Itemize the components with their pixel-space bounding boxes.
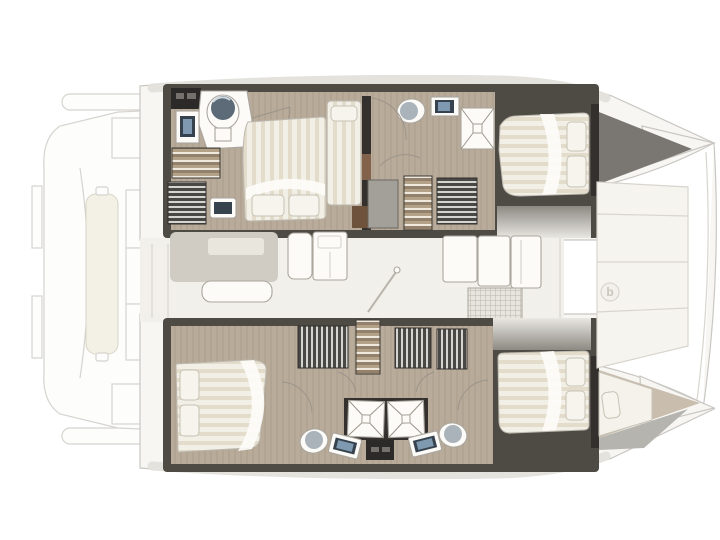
swim-step-upper xyxy=(32,186,42,248)
head1-cabinet xyxy=(171,88,201,109)
staircase-2 xyxy=(404,176,432,230)
foredeck-panels xyxy=(597,182,688,368)
bathroom-cabinet-knob-1 xyxy=(371,447,379,452)
wardrobe-1 xyxy=(168,182,206,224)
sunpad-cushion xyxy=(86,194,118,354)
hull-top-side-wedge xyxy=(497,206,591,238)
wardrobe-2 xyxy=(437,178,477,224)
double-bed-4-pillow-bottom xyxy=(566,391,585,420)
bathroom-cabinet-knob-2 xyxy=(382,447,390,452)
toilet-1-step xyxy=(215,128,231,141)
sunpad-hinge-bottom xyxy=(96,353,108,361)
catamaran-floorplan: b xyxy=(0,0,720,540)
wardrobe-3 xyxy=(298,326,348,368)
toilet-2-lid xyxy=(400,102,418,120)
galley-unit-1 xyxy=(288,233,312,279)
staircase-3 xyxy=(356,320,380,374)
galley-counter-1 xyxy=(443,236,477,282)
double-bed-4-pillow-top xyxy=(566,358,585,386)
bow-berth xyxy=(599,370,714,450)
swim-step-lower xyxy=(32,296,42,358)
galley-grid-mat xyxy=(468,288,522,320)
bedside-locker xyxy=(352,206,370,228)
galley-counter-3 xyxy=(511,236,541,288)
hull-bottom xyxy=(163,318,599,472)
bow-rim-outer xyxy=(703,143,716,409)
toilet-3-lid xyxy=(305,431,323,449)
head1-cabinet-knob-1 xyxy=(176,93,184,99)
bow-berth-pillow xyxy=(601,391,620,419)
salon-door-knob xyxy=(394,267,400,273)
shower-3 xyxy=(387,400,424,437)
dining-table-inset xyxy=(208,238,264,255)
galley-counter-2 xyxy=(478,236,510,286)
vanity-1-basin xyxy=(214,202,232,214)
floorplan-canvas: b xyxy=(0,0,720,540)
double-bed-2-pillow-top xyxy=(567,122,586,151)
single-berth-1-pillow xyxy=(331,106,357,121)
sunpad-hinge-top xyxy=(96,187,108,195)
foredeck: b xyxy=(597,182,688,368)
hull-top xyxy=(163,84,599,238)
staircase-1 xyxy=(172,148,220,178)
double-bed-1-pillow-right xyxy=(289,195,319,216)
shower-2 xyxy=(347,400,384,437)
cabin1-door xyxy=(362,154,371,180)
sink-2-water xyxy=(438,102,450,111)
bow-bulkhead-bottom xyxy=(591,356,599,448)
double-bed-3-pillow-top xyxy=(180,370,199,400)
double-bed-2-pillow-bottom xyxy=(567,156,586,187)
head1-cabinet-knob-2 xyxy=(187,93,196,99)
wardrobe-5 xyxy=(437,329,467,369)
toilet-4-lid xyxy=(444,425,462,443)
sink-1-water xyxy=(183,119,192,134)
double-bed-3-pillow-bottom xyxy=(180,405,199,436)
brand-logo-glyph: b xyxy=(606,285,613,299)
hull-bottom-side-wedge xyxy=(493,318,591,350)
double-bed-1-pillow-left xyxy=(252,195,284,216)
salon-bench xyxy=(202,281,272,302)
wardrobe-4 xyxy=(395,328,431,368)
shelf-unit-1 xyxy=(368,180,398,228)
shower-1 xyxy=(461,108,494,149)
